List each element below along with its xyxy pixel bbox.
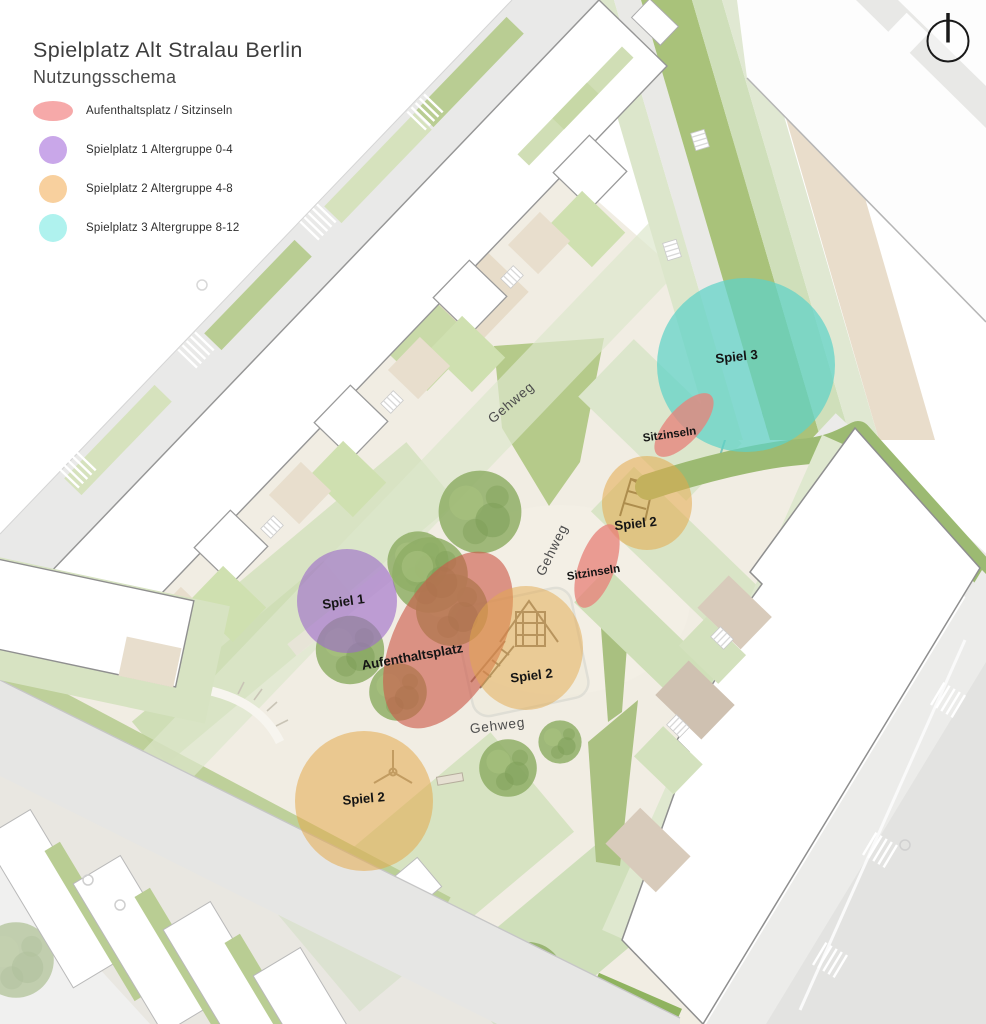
zone-spiel-2-mitte — [469, 586, 583, 710]
legend-label: Spielplatz 1 Altergruppe 0-4 — [86, 144, 233, 156]
page-subtitle: Nutzungsschema — [33, 67, 303, 88]
legend-item-spielplatz-1: Spielplatz 1 Altergruppe 0-4 — [31, 135, 239, 165]
title-block: Spielplatz Alt Stralau Berlin Nutzungssc… — [33, 38, 303, 88]
page-title: Spielplatz Alt Stralau Berlin — [33, 38, 303, 63]
legend-swatch-circle — [31, 213, 75, 243]
site-plan-page: Spiel 3 Sitzinseln Spiel 2 Sitzinseln Sp… — [0, 0, 986, 1024]
legend-swatch-ellipse — [31, 96, 75, 126]
legend: Aufenthaltsplatz / Sitzinseln Spielplatz… — [31, 96, 239, 252]
legend-label: Spielplatz 3 Altergruppe 8-12 — [86, 222, 239, 234]
legend-item-aufenthaltsplatz: Aufenthaltsplatz / Sitzinseln — [31, 96, 239, 126]
legend-label: Spielplatz 2 Altergruppe 4-8 — [86, 183, 233, 195]
legend-label: Aufenthaltsplatz / Sitzinseln — [86, 105, 232, 117]
legend-swatch-circle — [31, 135, 75, 165]
legend-item-spielplatz-3: Spielplatz 3 Altergruppe 8-12 — [31, 213, 239, 243]
legend-swatch-circle — [31, 174, 75, 204]
legend-item-spielplatz-2: Spielplatz 2 Altergruppe 4-8 — [31, 174, 239, 204]
